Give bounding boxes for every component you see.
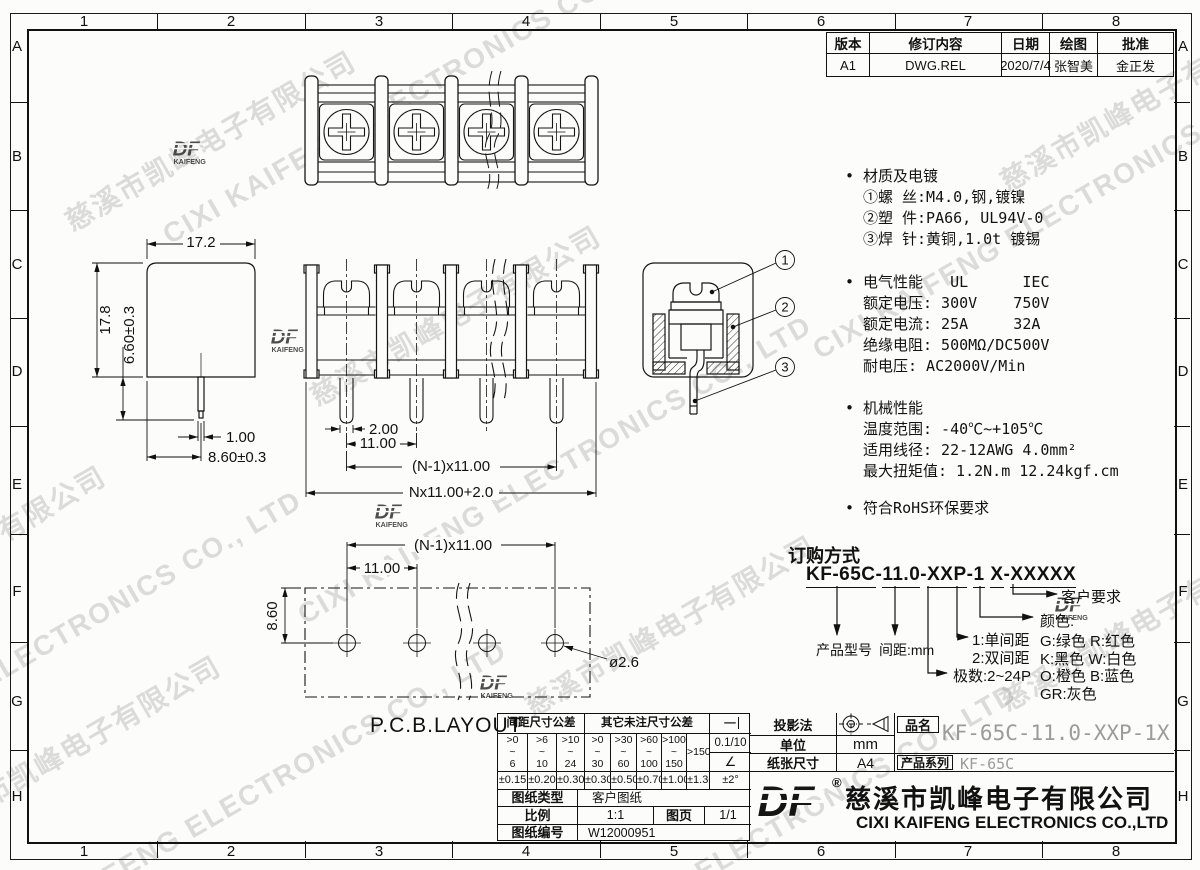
scale-label: 比例 [498, 807, 577, 825]
tolerance-range-line: >6 [528, 734, 556, 746]
svg-text:ø2.6: ø2.6 [609, 654, 639, 671]
svg-text:1: 1 [781, 253, 788, 268]
unit-value: mm [837, 736, 894, 753]
top-view-geometry [305, 71, 598, 191]
label-pitch-mm: 间距:mm [879, 640, 934, 660]
tolerance-table: 间距尺寸公差 其它未注尺寸公差 —∩▱ 0.1/10 ∠ ±2° 图纸类型 客户… [497, 713, 750, 841]
section-view-geometry [643, 263, 753, 414]
svg-text:17.2: 17.2 [186, 234, 215, 251]
revision-version: A1 [827, 54, 869, 77]
revision-approved-by: 金正发 [1097, 54, 1173, 77]
revision-header: 绘图 [1049, 33, 1097, 54]
revision-table: 版本 修订内容 日期 绘图 批准 A1 DWG.REL 2020/7/4 张智美… [826, 32, 1174, 77]
svg-text:Nx11.00+2.0: Nx11.00+2.0 [409, 484, 493, 501]
svg-text:8.60±0.3: 8.60±0.3 [208, 449, 266, 466]
color-option: GR:灰色 [1040, 683, 1097, 704]
company-name-en: CIXI KAIFENG ELECTRONICS CO.,LTD [856, 813, 1168, 833]
tolerance-range-line: 6 [498, 758, 527, 770]
tolerance-range-line: ~ [528, 746, 556, 758]
spec-group-rohs: • 符合RoHS环保要求 [845, 498, 989, 519]
ordering-section: 订购方式 KF-65C-11.0-XXP-1 X-XXXXX 产品型号 [780, 540, 1200, 725]
tolerance-range-line: ~ [662, 746, 686, 758]
paper-size-label: 纸张尺寸 [750, 754, 836, 771]
spec-line: 绝缘电阻: 500MΩ/DC500V [863, 335, 1050, 356]
revision-header: 日期 [1001, 33, 1049, 54]
part-name-label: 品名 [897, 716, 939, 733]
tolerance-range-line: 10 [528, 758, 556, 770]
tolerance-range-line: ~ [498, 746, 527, 758]
tolerance-range-line: 30 [585, 758, 610, 770]
tolerance-value-cell: ±1.00 [661, 772, 686, 790]
svg-text:(N-1)x11.00: (N-1)x11.00 [412, 458, 490, 475]
pcb-geometry [305, 583, 590, 700]
svg-text:8.60: 8.60 [264, 601, 281, 630]
section-view-drawing: 1 2 3 [633, 238, 808, 433]
tolerance-range-line: >0 [585, 734, 610, 746]
product-series-value: KF-65C [960, 755, 1014, 773]
revision-date: 2020/7/4 [1001, 54, 1049, 77]
section-callouts: 1 2 3 [693, 251, 794, 403]
registered-mark: ® [832, 775, 842, 790]
paper-size-value: A4 [837, 754, 894, 771]
title-block: 投影法 单位 mm 纸张尺寸 A4 品名 KF-65C-11.0-XXP-1X … [750, 713, 1174, 841]
straightness-symbol: — [722, 717, 739, 729]
front-view-drawing: 2.00 11.00 (N-1)x11.00 Nx11.00+2.0 [295, 245, 625, 510]
third-angle-projection-icon [838, 713, 894, 735]
scale-value: 1:1 [577, 807, 653, 825]
spec-line: 额定电流: 25A 32A [863, 314, 1050, 335]
tolerance-range-line: >100 [662, 734, 686, 746]
spec-line: 适用线径: 22-12AWG 4.0mm² [863, 440, 1119, 461]
drawing-sheet: 慈溪市凯峰电子有限公司CIXI KAIFENG ELECTRONICS CO.,… [0, 0, 1200, 870]
revision-header: 批准 [1097, 33, 1173, 54]
tolerance-range-cell: >10~24 [556, 734, 584, 772]
tolerance-range-line: 150 [662, 758, 686, 770]
spec-line: 最大扭矩值: 1.2N.m 12.24kgf.cm [863, 461, 1119, 482]
side-view-dimensions: 17.2 17.8 6.60±0.3 1.00 8.60±0.3 [92, 234, 266, 466]
spec-group-material: • 材质及电镀①螺 丝:M4.0,钢,镀镍②塑 件:PA66, UL94V-0③… [845, 166, 1043, 250]
tolerance-header-pitch: 间距尺寸公差 [498, 714, 584, 734]
spec-title: • 电气性能 UL IEC [845, 272, 1050, 293]
spec-title: • 机械性能 [845, 398, 1119, 419]
label-product-model: 产品型号 [816, 640, 872, 660]
tolerance-value-cell: ±0.20 [527, 772, 556, 790]
tolerance-range-line: 100 [637, 758, 661, 770]
tolerance-header-symbols: —∩▱ [709, 714, 751, 734]
label-poles: 极数:2~24P [953, 665, 1031, 686]
tolerance-range-cell: >100~150 [661, 734, 686, 772]
surface-tolerance-value: 0.1/10 [709, 734, 751, 753]
company-name-cn: 慈溪市凯峰电子有限公司 [845, 779, 1153, 816]
tolerance-range-line: 60 [611, 758, 636, 770]
tolerance-range-cell: >0~6 [498, 734, 527, 772]
side-view-drawing: 17.2 17.8 6.60±0.3 1.00 8.60±0.3 [80, 225, 310, 475]
spec-line: ①螺 丝:M4.0,钢,镀镍 [863, 187, 1043, 208]
top-view-drawing [283, 55, 613, 205]
page-value: 1/1 [704, 807, 751, 825]
revision-header: 修订内容 [869, 33, 1001, 54]
tolerance-value-cell: ±1.30 [686, 772, 709, 790]
angle-symbol: ∠ [709, 753, 751, 772]
tolerance-value-cell: ±0.70 [636, 772, 661, 790]
drawing-no-value: W12000951 [577, 825, 751, 841]
svg-text:11.00: 11.00 [360, 435, 396, 452]
svg-text:11.00: 11.00 [364, 560, 400, 577]
spec-title: • 材质及电镀 [845, 166, 1043, 187]
label-customer-request: 客户要求 [1061, 586, 1121, 607]
tolerance-range-line: ~ [585, 746, 610, 758]
front-view-dimensions: 2.00 11.00 (N-1)x11.00 Nx11.00+2.0 [306, 382, 596, 501]
doc-type-value: 客户图纸 [577, 790, 751, 807]
tolerance-range-cell: >60~100 [636, 734, 661, 772]
color-options: G:绿色 R:红色K:黑色 W:白色O:橙色 B:蓝色GR:灰色 [1040, 630, 1190, 710]
tolerance-range-line: >0 [498, 734, 527, 746]
spec-group-electrical: • 电气性能 UL IEC额定电压: 300V 750V额定电流: 25A 32… [845, 272, 1050, 377]
revision-drawn-by: 张智美 [1049, 54, 1097, 77]
label-color-title: 颜色: [1040, 610, 1074, 631]
svg-text:6.60±0.3: 6.60±0.3 [121, 306, 138, 364]
side-view-geometry [147, 263, 255, 418]
tolerance-range-cell: >0~30 [584, 734, 610, 772]
tolerance-range-line: >10 [557, 734, 584, 746]
spec-group-mechanical: • 机械性能温度范围: -40℃~+105℃适用线径: 22-12AWG 4.0… [845, 398, 1119, 482]
part-number: KF-65C-11.0-XXP-1X [942, 721, 1170, 745]
svg-text:3: 3 [781, 360, 788, 375]
svg-text:1.00: 1.00 [226, 429, 255, 446]
tolerance-range-line: 24 [557, 758, 584, 770]
svg-text:17.8: 17.8 [97, 305, 114, 334]
label-double-pitch: 2:双间距 [972, 647, 1030, 668]
svg-text:2: 2 [781, 300, 788, 315]
tolerance-range-line: ~ [557, 746, 584, 758]
divider [894, 713, 895, 771]
product-series-label: 产品系列 [897, 755, 953, 770]
company-logo: DF [756, 779, 832, 827]
tolerance-value-cell: ±0.30 [584, 772, 610, 790]
tolerance-header-other: 其它未注尺寸公差 [584, 714, 709, 734]
tolerance-value-cell: ±0.15 [498, 772, 527, 790]
tolerance-value-cell: ±0.30 [556, 772, 584, 790]
spec-line: 额定电压: 300V 750V [863, 293, 1050, 314]
angle-tolerance-value: ±2° [709, 772, 751, 790]
tolerance-value-cell: ±0.50 [610, 772, 636, 790]
pcb-dimensions: (N-1)x11.00 11.00 8.60 ø2.6 [264, 537, 639, 671]
doc-type-label: 图纸类型 [498, 790, 577, 807]
front-view-geometry [304, 259, 599, 431]
drawing-no-label: 图纸编号 [498, 825, 577, 841]
spec-line: 耐电压: AC2000V/Min [863, 356, 1050, 377]
tolerance-range-cell: >6~10 [527, 734, 556, 772]
spec-title: • 符合RoHS环保要求 [845, 498, 989, 519]
svg-text:(N-1)x11.00: (N-1)x11.00 [414, 537, 492, 554]
tolerance-range-cell: >30~60 [610, 734, 636, 772]
revision-header: 版本 [827, 33, 869, 54]
specifications: • 材质及电镀①螺 丝:M4.0,钢,镀镍②塑 件:PA66, UL94V-0③… [845, 158, 1177, 528]
page-label: 图页 [653, 807, 704, 825]
tolerance-range-line: ~ [637, 746, 661, 758]
unit-label: 单位 [750, 736, 836, 753]
tolerance-range-line: ~ [611, 746, 636, 758]
spec-line: ③焊 针:黄铜,1.0t 镀锡 [863, 229, 1043, 250]
projection-label: 投影法 [750, 713, 836, 735]
spec-line: 温度范围: -40℃~+105℃ [863, 419, 1119, 440]
content-layer: 版本 修订内容 日期 绘图 批准 A1 DWG.REL 2020/7/4 张智美… [0, 0, 1200, 870]
pcb-layout-drawing: (N-1)x11.00 11.00 8.60 ø2.6 [263, 528, 663, 743]
tolerance-range-cell: >150 [686, 734, 709, 772]
tolerance-range-line: >60 [637, 734, 661, 746]
spec-line: ②塑 件:PA66, UL94V-0 [863, 208, 1043, 229]
tolerance-range-line: >30 [611, 734, 636, 746]
revision-content: DWG.REL [869, 54, 1001, 77]
